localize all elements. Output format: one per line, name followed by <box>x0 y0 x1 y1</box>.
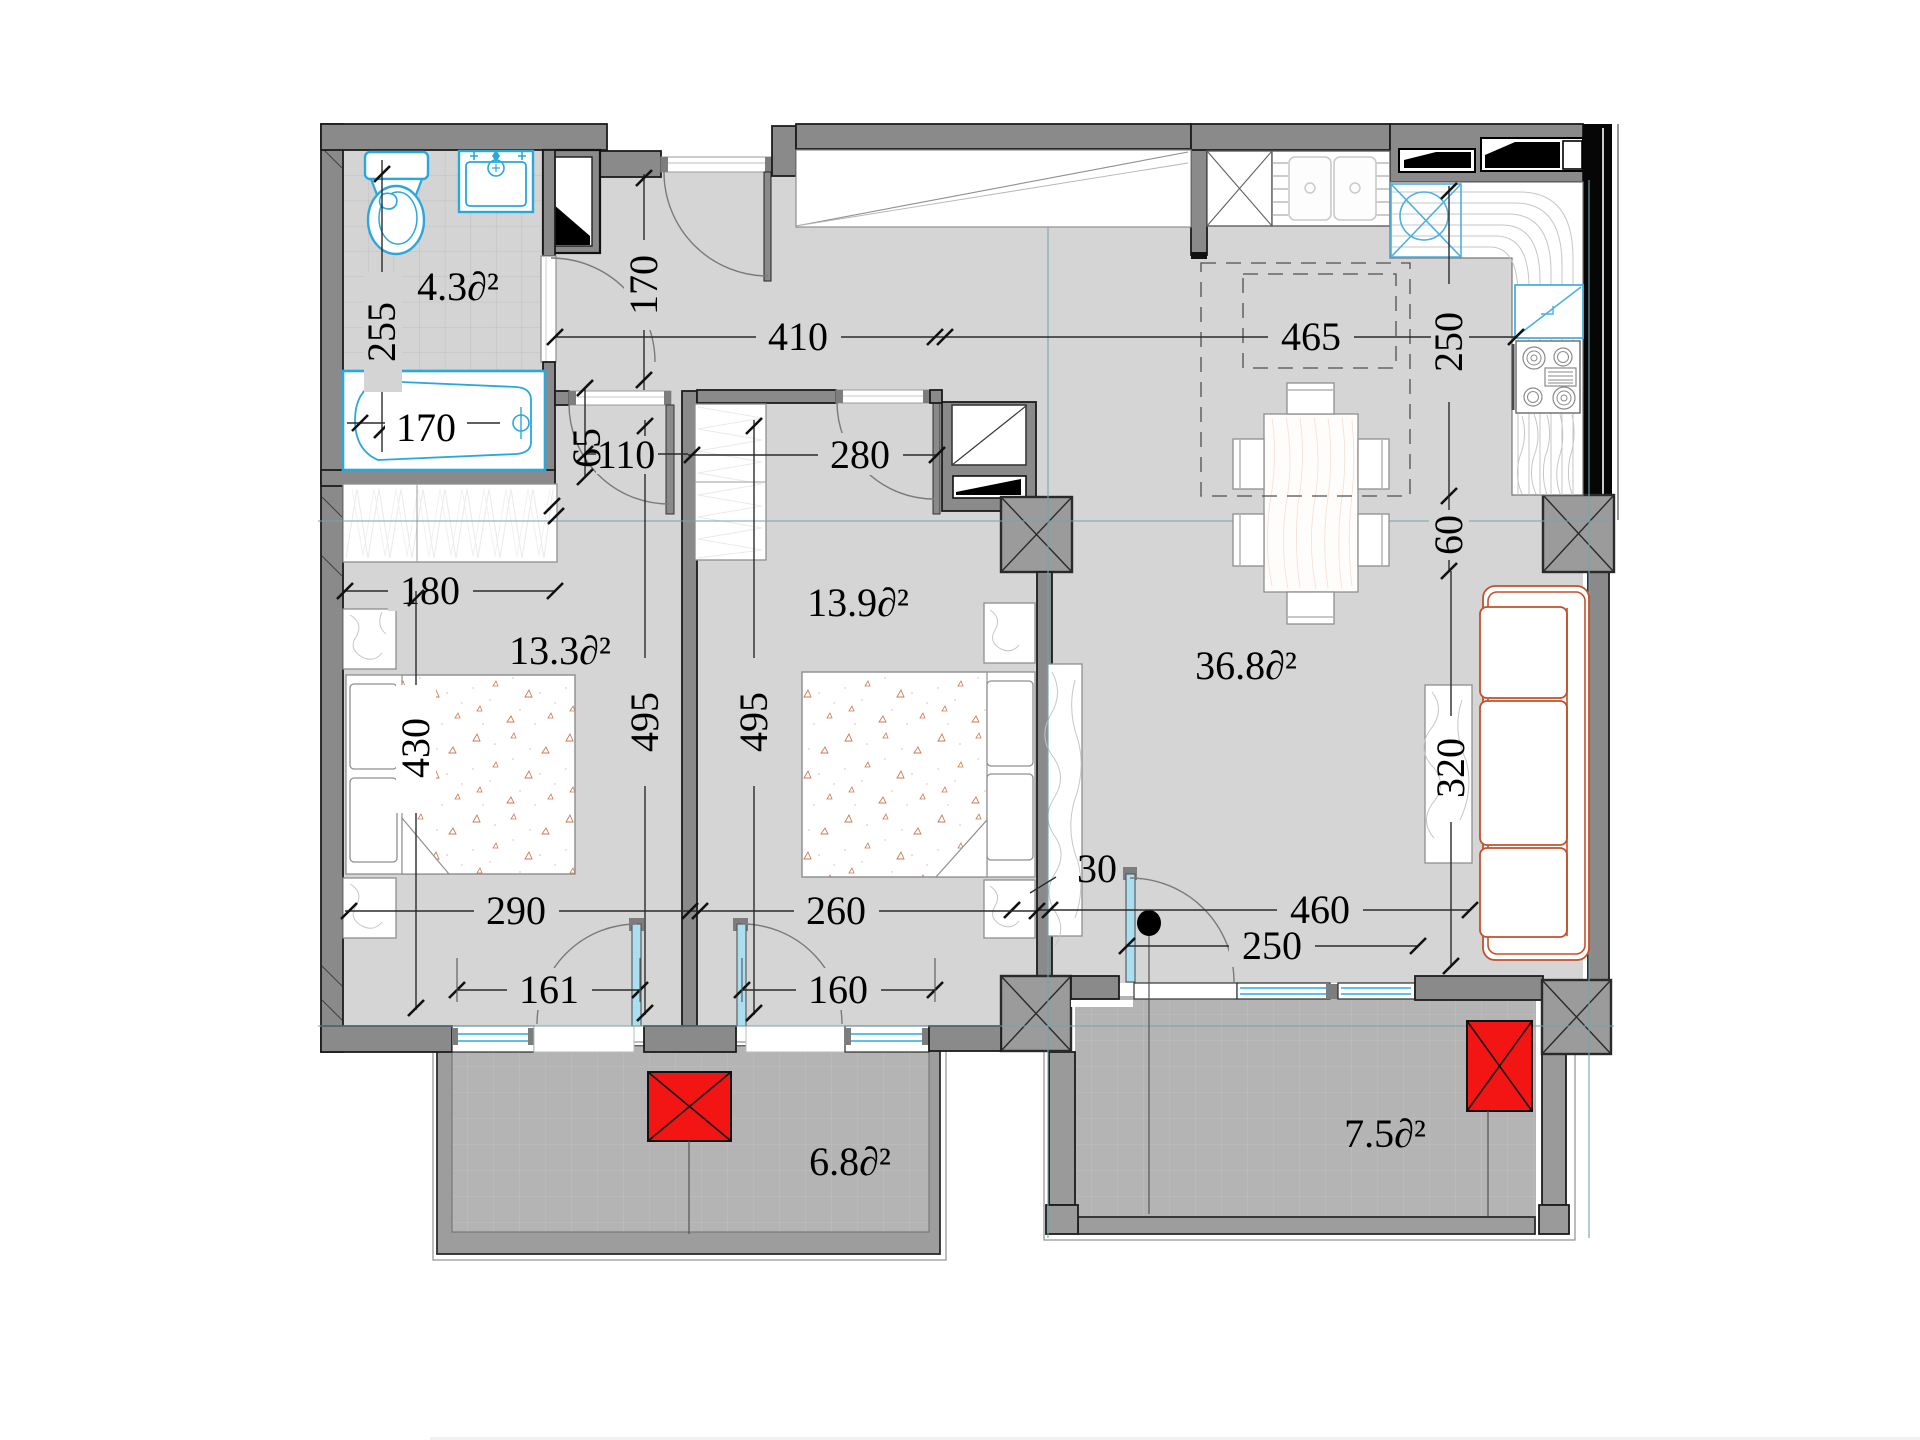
svg-text:65: 65 <box>564 428 609 468</box>
svg-text:430: 430 <box>393 718 438 778</box>
svg-text:60: 60 <box>1426 515 1471 555</box>
svg-text:13.3∂²: 13.3∂² <box>509 628 611 673</box>
svg-text:30: 30 <box>1077 846 1117 891</box>
svg-text:161: 161 <box>519 967 579 1012</box>
svg-text:36.8∂²: 36.8∂² <box>1195 643 1297 688</box>
svg-text:160: 160 <box>808 967 868 1012</box>
svg-text:280: 280 <box>830 432 890 477</box>
svg-text:13.9∂²: 13.9∂² <box>807 580 909 625</box>
svg-text:290: 290 <box>486 888 546 933</box>
svg-text:170: 170 <box>621 255 666 315</box>
svg-text:6.8∂²: 6.8∂² <box>809 1139 891 1184</box>
svg-text:4.3∂²: 4.3∂² <box>417 264 499 309</box>
svg-text:495: 495 <box>622 692 667 752</box>
svg-text:495: 495 <box>731 692 776 752</box>
svg-text:410: 410 <box>768 314 828 359</box>
svg-text:170: 170 <box>396 405 456 450</box>
svg-text:260: 260 <box>806 888 866 933</box>
svg-text:255: 255 <box>359 302 404 362</box>
svg-text:7.5∂²: 7.5∂² <box>1344 1111 1426 1156</box>
svg-text:465: 465 <box>1281 314 1341 359</box>
svg-text:250: 250 <box>1426 312 1471 372</box>
svg-text:250: 250 <box>1242 923 1302 968</box>
svg-text:320: 320 <box>1428 738 1473 798</box>
